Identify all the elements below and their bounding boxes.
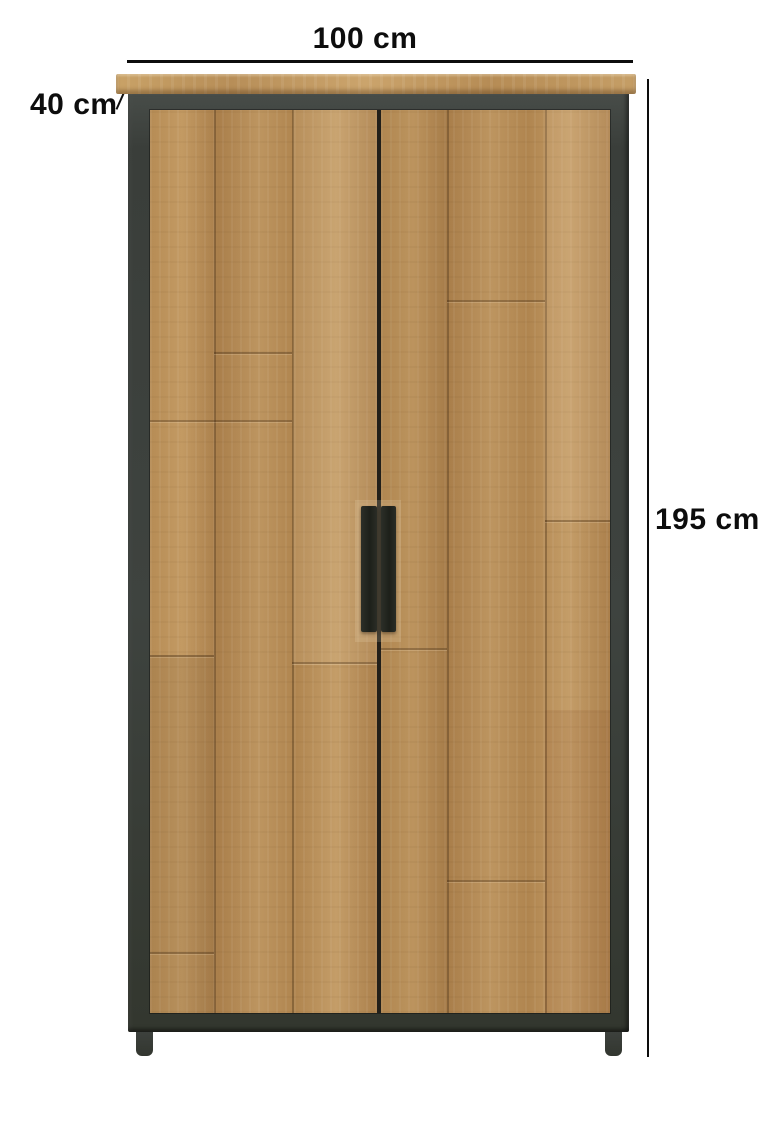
wood-plank-seam bbox=[381, 648, 447, 650]
wood-plank-seam bbox=[292, 662, 377, 664]
wardrobe-top-panel bbox=[116, 74, 636, 94]
wardrobe-doors bbox=[150, 110, 610, 1013]
wood-plank-seam bbox=[214, 352, 292, 354]
wood-plank-divider bbox=[447, 110, 449, 1013]
wood-plank-seam bbox=[447, 300, 545, 302]
wood-plank-seam bbox=[150, 655, 214, 657]
wood-plank-seam bbox=[150, 420, 292, 422]
left-door bbox=[150, 110, 377, 1013]
width-dimension-label: 100 cm bbox=[112, 22, 618, 56]
depth-dimension-label: 40 cm bbox=[30, 88, 118, 122]
wood-plank-divider bbox=[214, 110, 216, 1013]
left-leg bbox=[136, 1032, 153, 1056]
wood-plank bbox=[545, 110, 610, 520]
wood-plank-seam bbox=[150, 952, 214, 954]
wood-plank bbox=[545, 710, 610, 1013]
right-door-handle bbox=[381, 506, 396, 632]
left-door-handle bbox=[361, 506, 377, 632]
height-dimension-line bbox=[647, 79, 649, 1057]
product-dimension-image: 100 cm 40 cm 195 cm bbox=[0, 0, 765, 1134]
wood-plank-seam bbox=[545, 520, 610, 522]
right-door bbox=[381, 110, 610, 1013]
right-leg bbox=[605, 1032, 622, 1056]
width-dimension-line bbox=[127, 60, 633, 63]
wood-plank-seam bbox=[447, 880, 545, 882]
height-dimension-label: 195 cm bbox=[655, 503, 760, 537]
wood-plank bbox=[150, 655, 214, 1013]
